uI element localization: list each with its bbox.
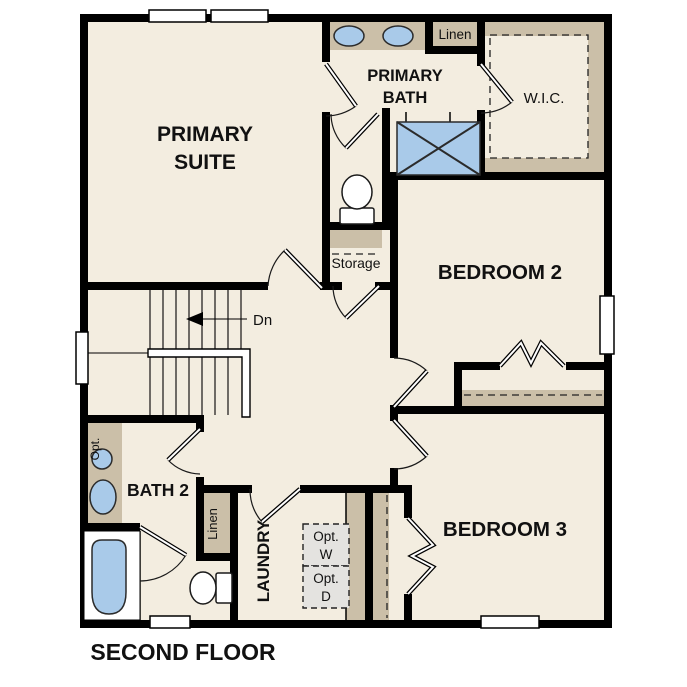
opt-dryer-label-1: Opt. xyxy=(313,571,339,586)
bath2-label: BATH 2 xyxy=(127,480,189,500)
wall-segment xyxy=(404,485,412,518)
wic-shelf-top xyxy=(485,22,604,36)
wall-segment xyxy=(454,362,462,406)
bedroom2-label: BEDROOM 2 xyxy=(438,261,562,284)
wall-segment xyxy=(566,362,604,370)
opt-washer-label-2: W xyxy=(320,547,333,562)
bedroom3-label: BEDROOM 3 xyxy=(443,518,567,541)
storage-shelf xyxy=(330,230,382,248)
wall-segment xyxy=(196,477,204,485)
wall-segment xyxy=(425,46,485,54)
laundry-label: LAUNDRY xyxy=(254,519,273,602)
toilet-bowl-icon xyxy=(190,572,216,604)
storage-label: Storage xyxy=(331,255,380,271)
bathtub-icon xyxy=(92,540,126,614)
wic-shelf-right xyxy=(588,36,604,172)
optional-sink-label: Opt. xyxy=(88,438,102,461)
opt-dryer-label-2: D xyxy=(321,589,331,604)
primary-suite-label-1: PRIMARY xyxy=(157,123,253,146)
wall-segment xyxy=(477,14,485,66)
wall-segment xyxy=(322,22,330,62)
vanity-sink-icon xyxy=(383,26,413,46)
window xyxy=(600,296,614,354)
window xyxy=(76,332,88,384)
wall-segment xyxy=(322,112,330,290)
wall-segment xyxy=(230,485,238,628)
plan-title: SECOND FLOOR xyxy=(90,639,276,665)
wic-label: W.I.C. xyxy=(524,90,565,107)
opt-washer-label-1: Opt. xyxy=(313,529,339,544)
wall-segment xyxy=(300,485,412,493)
wall-segment xyxy=(390,180,398,358)
vanity-sink-icon xyxy=(90,480,116,514)
wall-segment xyxy=(320,282,342,290)
primary-suite-label-2: SUITE xyxy=(174,151,236,174)
vanity-sink-icon xyxy=(334,26,364,46)
stair-direction-label: Dn xyxy=(253,312,272,329)
wall-segment xyxy=(84,523,140,531)
primary-bath-label-1: PRIMARY xyxy=(367,67,442,85)
window xyxy=(149,10,206,22)
bedroom2-closet-shelf xyxy=(462,390,604,406)
wall-segment xyxy=(404,594,412,628)
wall-segment xyxy=(196,485,204,561)
floor-plan-drawing: Dn xyxy=(0,0,687,687)
linen-lower-label: Linen xyxy=(205,508,220,540)
window xyxy=(211,10,268,22)
toilet-tank-icon xyxy=(340,208,374,224)
linen-upper-label: Linen xyxy=(438,27,471,42)
window xyxy=(481,616,539,628)
wall-segment xyxy=(425,14,433,50)
toilet-bowl-icon xyxy=(342,175,372,209)
floor-plan-page: Dn xyxy=(0,0,687,687)
wall-segment xyxy=(390,406,612,414)
wall-segment xyxy=(80,282,268,290)
wall-segment xyxy=(80,415,204,423)
toilet-tank-icon xyxy=(216,573,232,603)
wic-shelf-bottom xyxy=(485,158,588,172)
wall-segment xyxy=(382,108,390,230)
primary-bath-label-2: BATH xyxy=(383,89,428,107)
wall-segment xyxy=(365,485,373,628)
window xyxy=(150,616,190,628)
